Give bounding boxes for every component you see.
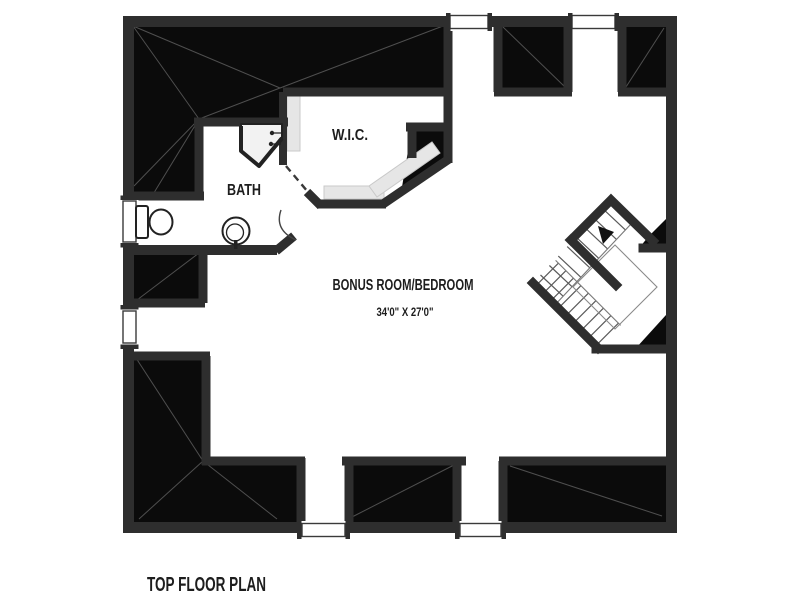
window-left-2: [121, 305, 139, 349]
toilet-icon: [136, 206, 173, 238]
window-top-1: [446, 13, 492, 31]
wic-shelf-left: [287, 96, 300, 151]
attic-region-bottom-right: [503, 461, 671, 527]
bath-label: BATH: [227, 182, 261, 199]
window-bottom-2: [455, 521, 506, 539]
plan-title: TOP FLOOR PLAN: [147, 574, 266, 596]
bonus-room-label: BONUS ROOM/BEDROOM: [333, 277, 474, 294]
bonus-room-dimensions: 34'0" X 27'0": [377, 307, 434, 319]
window-top-2: [568, 13, 619, 31]
sink-faucet: [234, 240, 238, 249]
floor-plan-page: BATH W.I.C. BONUS ROOM/BEDROOM 34'0" X 2…: [0, 0, 792, 612]
wic-label: W.I.C.: [332, 127, 368, 144]
window-bottom-1: [297, 521, 350, 539]
attic-region-dormer-b: [620, 20, 671, 90]
floor-plan-drawing: BATH W.I.C. BONUS ROOM/BEDROOM 34'0" X 2…: [0, 0, 792, 612]
